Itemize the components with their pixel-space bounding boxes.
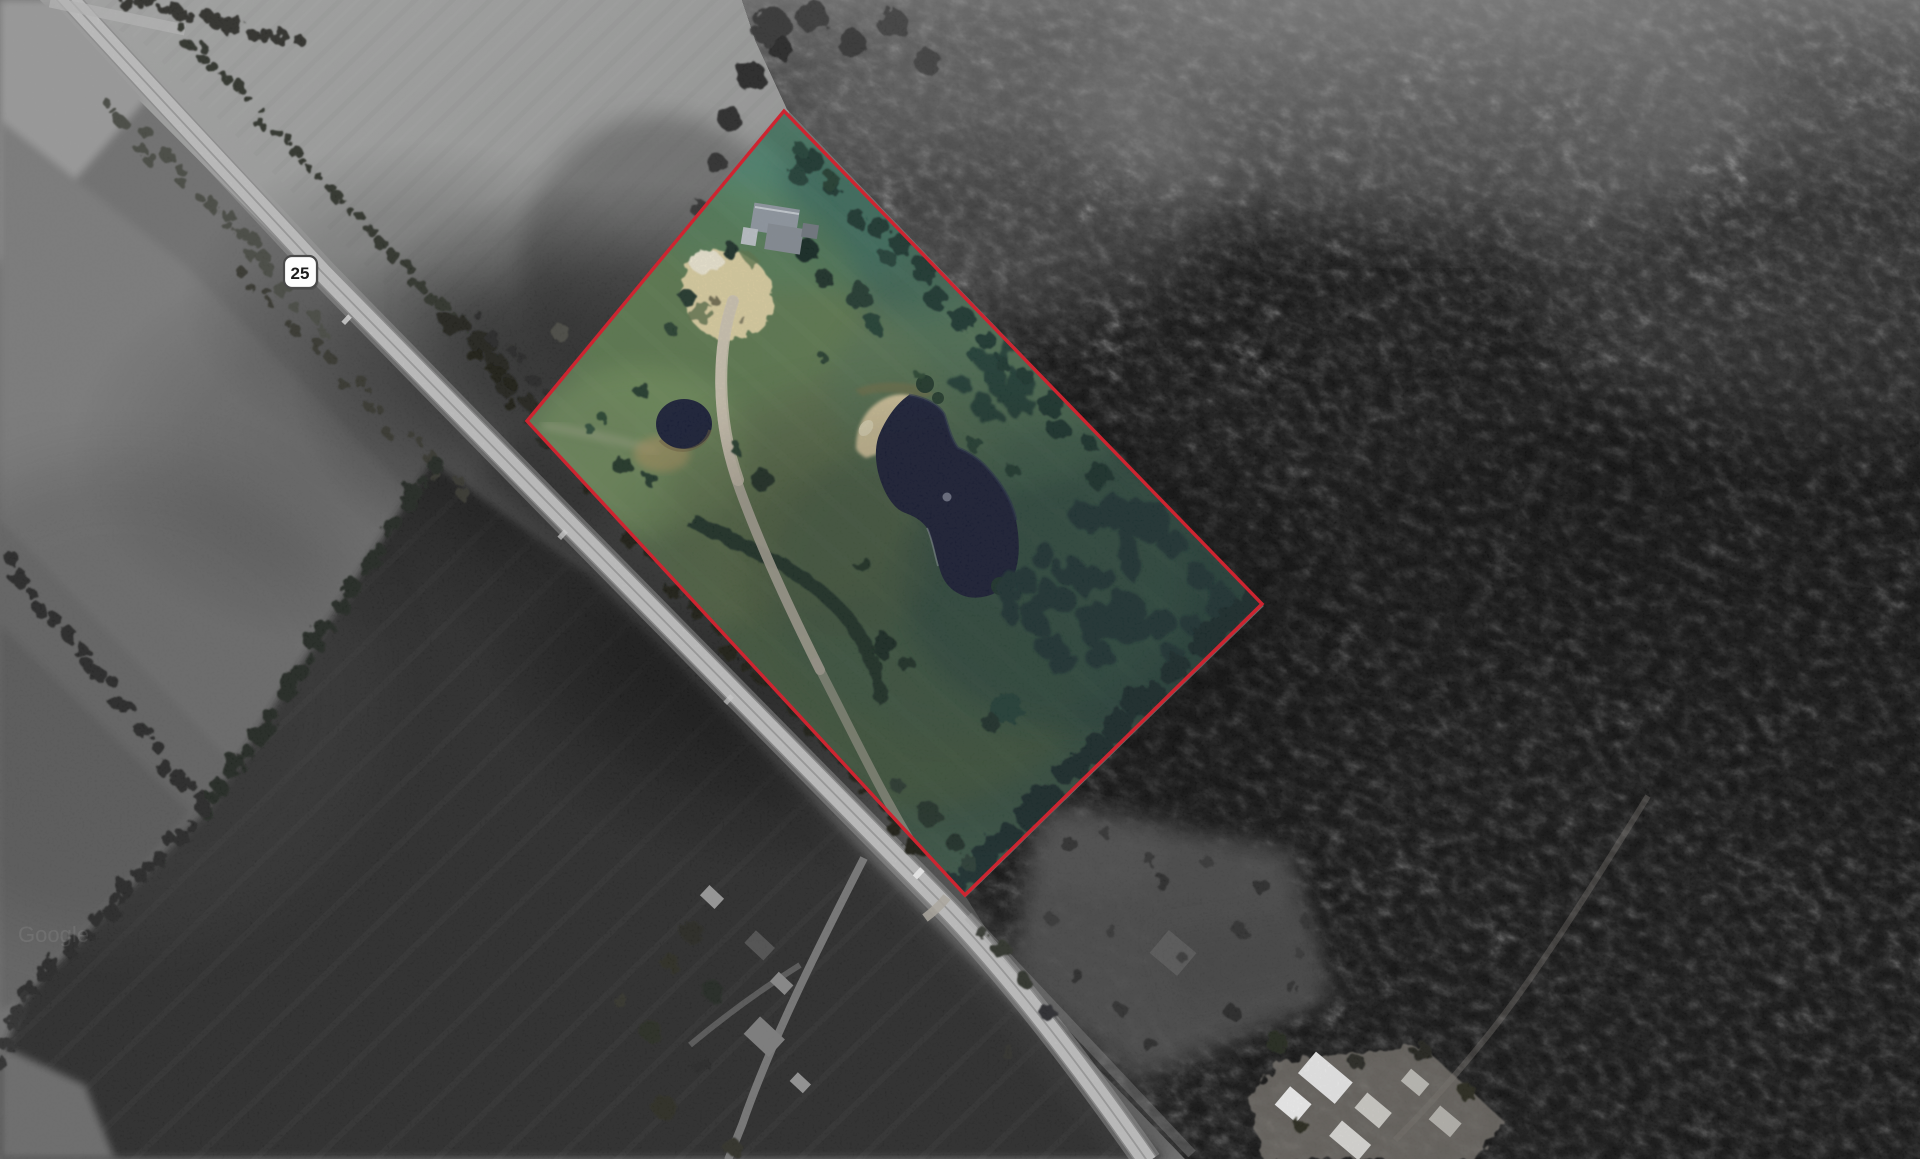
svg-text:Google: Google [18,922,89,947]
svg-text:25: 25 [291,264,310,283]
